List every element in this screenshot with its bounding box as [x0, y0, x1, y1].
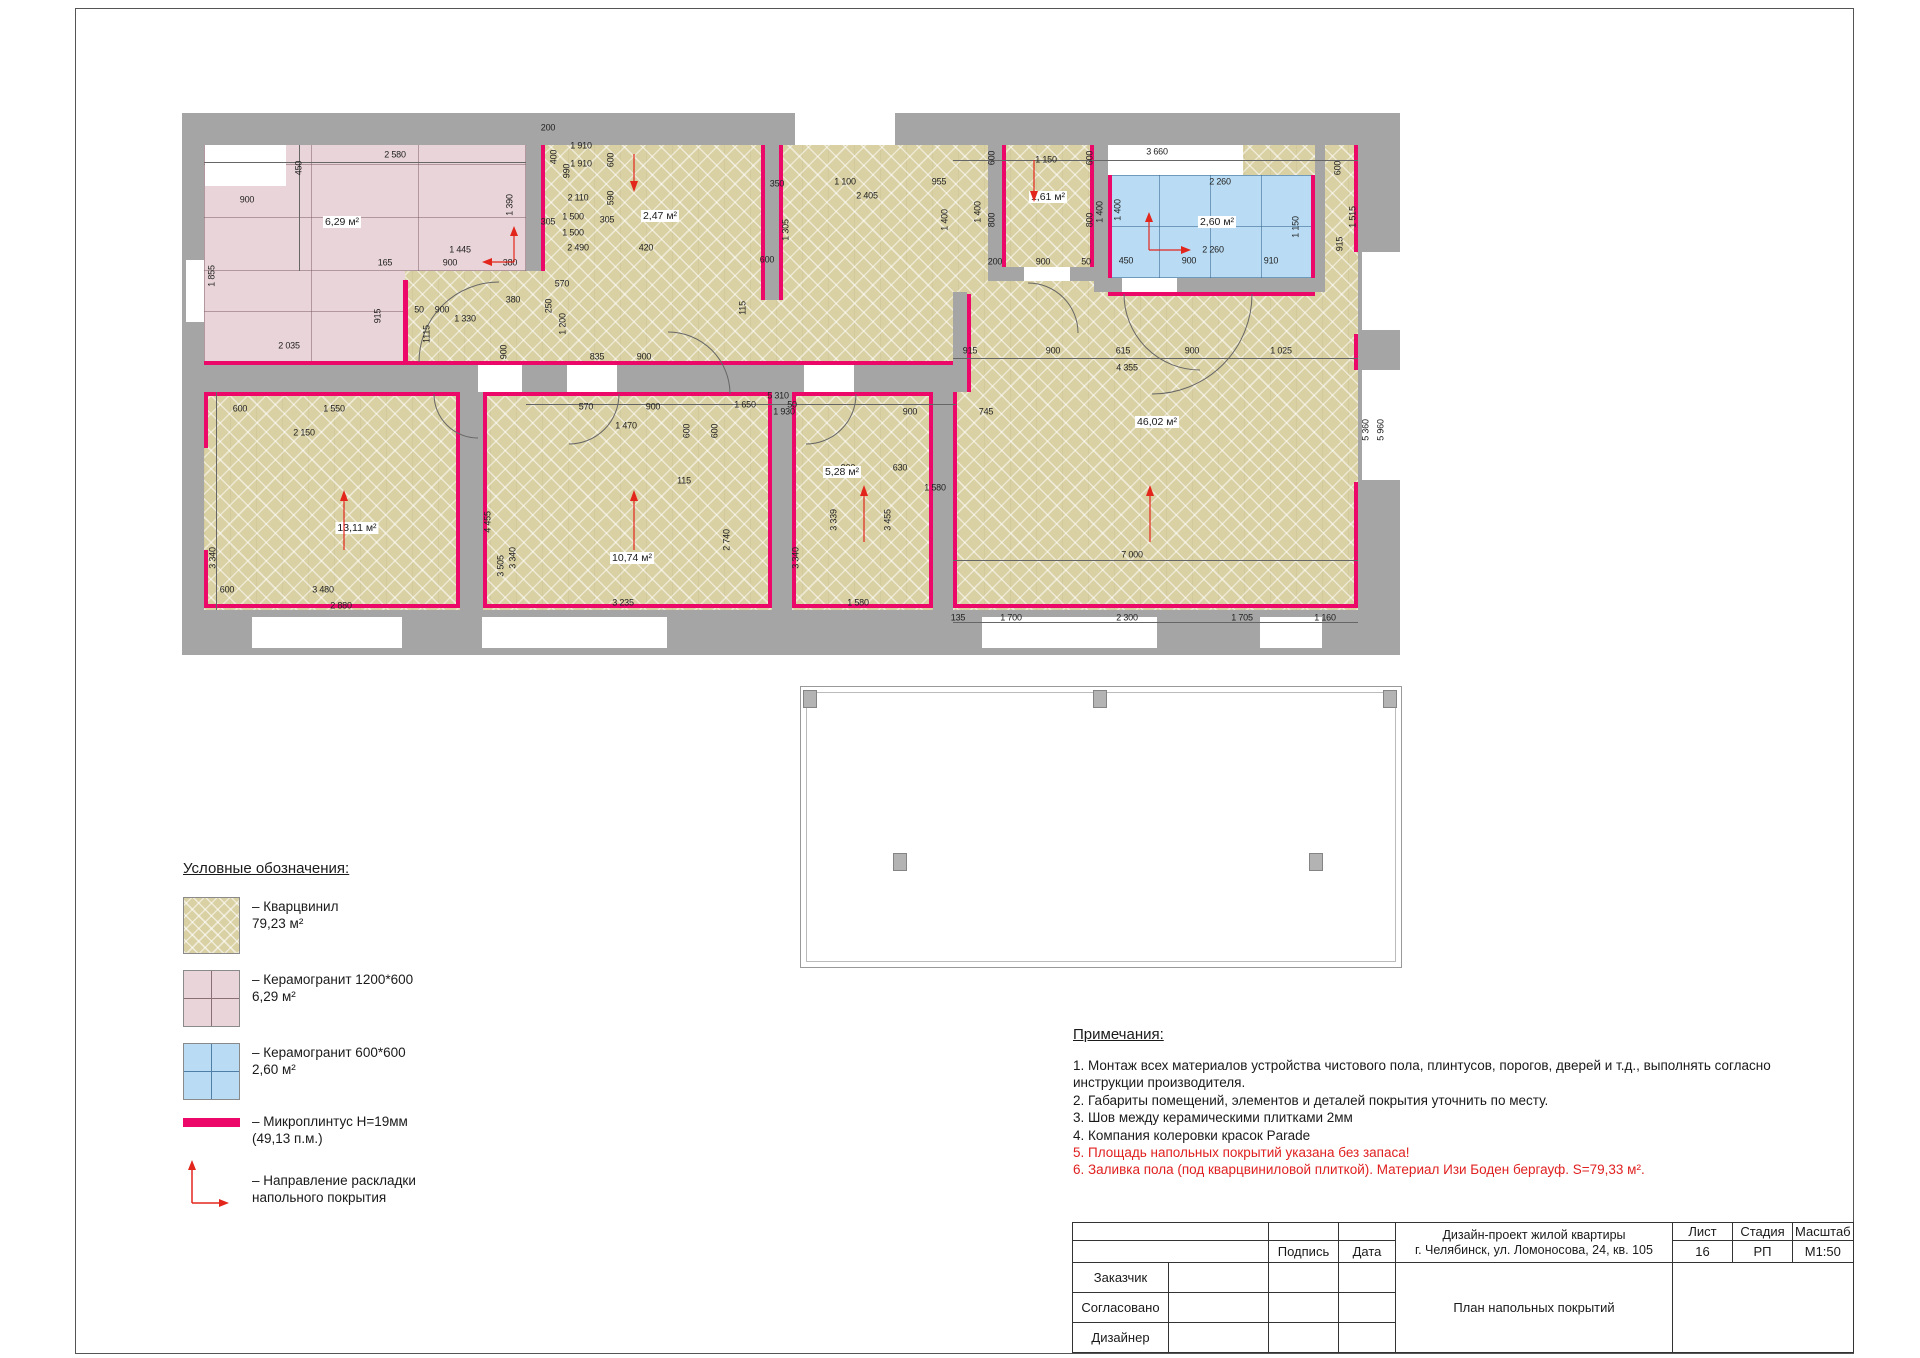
microplinth	[526, 361, 953, 365]
dimension-label: 2 880	[330, 602, 352, 611]
room-area-label: 2,60 м²	[1198, 216, 1236, 228]
dimension-label: 165	[378, 259, 392, 268]
microplinth	[1002, 145, 1006, 267]
legend-label: – Кварцвинил	[252, 899, 338, 914]
dimension-label: 900	[1046, 347, 1060, 356]
title-block-cell	[1339, 1223, 1396, 1241]
wall	[182, 113, 204, 655]
terrace-column	[1383, 690, 1397, 708]
microplinth	[1108, 175, 1112, 278]
dimension-label: 570	[555, 280, 569, 289]
dimension-label: 600	[711, 424, 720, 438]
dimension-label: 1 700	[1000, 614, 1022, 623]
note-line: 4. Компания колеровки красок Parade	[1073, 1127, 1863, 1144]
dimension-label: 800	[1086, 213, 1095, 227]
note-line: 2. Габариты помещений, элементов и детал…	[1073, 1092, 1863, 1109]
room-area-label: 5,28 м²	[823, 466, 861, 478]
dimension-label: 4 455	[484, 511, 493, 533]
dimension-label: 1 330	[454, 315, 476, 324]
terrace-inner-line	[806, 692, 1396, 962]
ceramic-600-swatch-icon	[183, 1043, 240, 1100]
quartz-vinyl-swatch-icon	[183, 897, 240, 954]
title-block-cell	[1339, 1263, 1396, 1293]
microplinth	[792, 392, 796, 604]
direction-arrow-icon	[183, 1158, 231, 1210]
microplinth	[403, 280, 408, 365]
title-block-cell	[1169, 1263, 1269, 1293]
terrace-column	[1309, 853, 1323, 871]
dimension-label: 450	[1119, 257, 1133, 266]
title-block-cell	[1073, 1223, 1269, 1241]
microplinth-swatch-icon	[183, 1118, 240, 1127]
title-block: Дизайн-проект жилой квартиры г. Челябинс…	[1072, 1222, 1854, 1353]
stage-value: РП	[1733, 1241, 1793, 1263]
dimension-label: 900	[435, 306, 449, 315]
door-swing-arc	[569, 394, 619, 444]
title-block-cell	[1673, 1263, 1854, 1353]
microplinth	[204, 392, 460, 396]
customer-label: Заказчик	[1073, 1263, 1169, 1293]
window-opening	[482, 617, 667, 648]
microplinth	[929, 392, 933, 604]
dimension-label: 900	[240, 196, 254, 205]
legend-area: 6,29 м²	[252, 989, 296, 1004]
dimension-label: 7 000	[1121, 551, 1143, 560]
sheet-number: 16	[1673, 1241, 1733, 1263]
dimension-label: 50	[414, 306, 424, 315]
microplinth	[953, 392, 957, 604]
dimension-label: 50	[787, 401, 797, 410]
dimension-label: 420	[639, 244, 653, 253]
window-opening	[567, 365, 617, 392]
room-area-label: 6,29 м²	[323, 216, 361, 228]
dimension-label: 3 235	[612, 599, 634, 608]
direction-arrow-icon	[1145, 485, 1155, 544]
title-block-cell	[1269, 1263, 1339, 1293]
dimension-label: 955	[932, 178, 946, 187]
legend-label: – Микроплинтус Н=19мм	[252, 1114, 408, 1129]
stage-label: Стадия	[1733, 1223, 1793, 1241]
window-opening	[478, 365, 522, 392]
dimension-label: 600	[683, 424, 692, 438]
ceramic-1200-swatch-icon	[183, 970, 240, 1027]
direction-arrow-icon	[339, 490, 349, 552]
window-opening	[795, 113, 895, 145]
legend-label: – Керамогранит 1200*600	[252, 972, 413, 987]
dimension-label: 3 339	[830, 509, 839, 531]
door-swing-arc	[434, 394, 478, 438]
microplinth	[1354, 145, 1358, 252]
dimension-label: 900	[1036, 258, 1050, 267]
microplinth	[1354, 482, 1358, 604]
dimension-label: 900	[646, 403, 660, 412]
dimension-label: 1 910	[570, 160, 592, 169]
dimension-label: 2 260	[1202, 246, 1224, 255]
dimension-label: 3 505	[497, 555, 506, 577]
project-description: Дизайн-проект жилой квартиры г. Челябинс…	[1396, 1223, 1673, 1263]
window-opening	[252, 617, 402, 648]
legend-item-direction: – Направление раскладкинапольного покрыт…	[183, 1158, 231, 1215]
dimension-label: 305	[541, 218, 555, 227]
dimension-label: 1 580	[924, 484, 946, 493]
door-swing-arc	[1028, 283, 1078, 333]
note-line: инструкции производителя.	[1073, 1074, 1863, 1091]
microplinth	[768, 392, 772, 604]
dimension-label: 305	[600, 216, 614, 225]
title-block-cell	[1269, 1323, 1339, 1353]
room-area-label: 46,02 м²	[1135, 416, 1179, 428]
dimension-label: 200	[988, 258, 1002, 267]
microplinth	[967, 294, 971, 392]
door-swing-arc	[668, 332, 730, 394]
note-line: 1. Монтаж всех материалов устройства чис…	[1073, 1057, 1863, 1074]
legend-area: (49,13 п.м.)	[252, 1131, 323, 1146]
dimension-label: 600	[220, 586, 234, 595]
wall	[988, 113, 1002, 267]
project-line2: г. Челябинск, ул. Ломоносова, 24, кв. 10…	[1415, 1243, 1653, 1257]
wall	[765, 145, 779, 300]
dimension-label: 900	[903, 408, 917, 417]
dimension-label: 1 400	[1096, 201, 1105, 223]
window-opening	[1122, 278, 1177, 292]
dimension-label: 1 500	[562, 229, 584, 238]
dimension-label: 1 025	[1270, 347, 1292, 356]
dimension-label: 350	[770, 180, 784, 189]
direction-arrow-icon	[629, 490, 639, 552]
direction-arrow-icon	[1029, 158, 1039, 202]
dimension-label: 2 035	[278, 342, 300, 351]
dimension-label: 1115	[423, 325, 432, 343]
wall	[933, 392, 953, 610]
dimension-label: 2 150	[293, 429, 315, 438]
dimension-label: 1 855	[208, 265, 217, 287]
dimension-label: 900	[1185, 347, 1199, 356]
dimension-label: 3 455	[884, 509, 893, 531]
dimension-label: 1 160	[1314, 614, 1336, 623]
title-block-cell	[1339, 1323, 1396, 1353]
dimension-label: 990	[563, 164, 572, 178]
title-block-cell	[1073, 1241, 1269, 1263]
floor-plan: 2 5804509001 3901 8551 4451659003809152 …	[182, 100, 1400, 658]
approved-label: Согласовано	[1073, 1293, 1169, 1323]
date-column-label: Дата	[1339, 1241, 1396, 1263]
dimension-label: 5 310	[767, 392, 789, 401]
door-swing-arc	[806, 394, 856, 444]
dimension-label: 1 100	[834, 178, 856, 187]
dimension-label: 2 740	[723, 529, 732, 551]
dimension-label: 450	[295, 161, 304, 175]
dimension-label: 600	[988, 151, 997, 165]
microplinth	[204, 392, 208, 448]
legend-heading: Условные обозначения:	[183, 860, 349, 877]
dimension-label: 5 360	[1362, 419, 1371, 441]
dimension-label: 1 470	[615, 422, 637, 431]
dimension-label: 3 340	[509, 547, 518, 569]
window-opening	[186, 260, 204, 322]
dimension-label: 600	[1334, 161, 1343, 175]
dimension-label: 800	[988, 213, 997, 227]
legend-label: – Направление раскладки	[252, 1173, 416, 1188]
dimension-label: 1 200	[559, 313, 568, 335]
dimension-line	[953, 560, 1358, 561]
dimension-label: 115	[677, 477, 691, 486]
dimension-label: 1 445	[449, 246, 471, 255]
dimension-label: 600	[607, 153, 616, 167]
title-block-cell	[1169, 1293, 1269, 1323]
dimension-label: 3 340	[209, 547, 218, 569]
legend-label: – Керамогранит 600*600	[252, 1045, 406, 1060]
window-opening	[205, 145, 286, 186]
dimension-label: 1 550	[323, 405, 345, 414]
wall	[1315, 113, 1325, 292]
dimension-label: 900	[1182, 257, 1196, 266]
dimension-label: 915	[963, 347, 977, 356]
scale-label: Масштаб	[1793, 1223, 1854, 1241]
dimension-label: 1 400	[1114, 199, 1123, 221]
dimension-line	[204, 162, 526, 163]
dimension-label: 600	[233, 405, 247, 414]
dimension-label: 2 580	[384, 151, 406, 160]
dimension-label: 570	[579, 403, 593, 412]
terrace-column	[893, 853, 907, 871]
dimension-label: 3 340	[792, 547, 801, 569]
dimension-label: 250	[545, 299, 554, 313]
note-line: 3. Шов между керамическими плитками 2мм	[1073, 1109, 1863, 1126]
wall	[526, 113, 541, 271]
dimension-label: 910	[1264, 257, 1278, 266]
window-opening	[804, 365, 854, 392]
project-line1: Дизайн-проект жилой квартиры	[1442, 1228, 1625, 1242]
dimension-label: 1 150	[1292, 216, 1301, 238]
title-block-cell	[1169, 1323, 1269, 1353]
dimension-label: 1 400	[974, 201, 983, 223]
direction-arrow-icon	[482, 226, 518, 266]
notes-heading: Примечания:	[1073, 1026, 1863, 1043]
terrace-column	[803, 690, 817, 708]
dimension-label: 1 910	[570, 142, 592, 151]
wall	[953, 292, 967, 392]
dimension-label: 1 650	[734, 401, 756, 410]
microplinth	[761, 145, 765, 300]
dimension-label: 1 515	[1349, 206, 1358, 228]
terrace-outline	[800, 686, 1402, 968]
legend-area: напольного покрытия	[252, 1190, 386, 1205]
wall	[182, 113, 1400, 145]
dimension-label: 2 300	[1116, 614, 1138, 623]
notes: Примечания: 1. Монтаж всех материалов ус…	[1073, 1026, 1863, 1179]
wall	[772, 392, 792, 610]
designer-label: Дизайнер	[1073, 1323, 1169, 1353]
dimension-label: 900	[443, 259, 457, 268]
dimension-label: 600	[1086, 151, 1095, 165]
microplinth	[1354, 334, 1358, 370]
title-block-cell	[1269, 1293, 1339, 1323]
note-line-warning: 6. Заливка пола (под кварцвиниловой плит…	[1073, 1161, 1863, 1178]
direction-arrow-icon	[859, 485, 869, 544]
dimension-label: 3 480	[312, 586, 334, 595]
dimension-label: 200	[541, 124, 555, 133]
dimension-label: 380	[506, 296, 520, 305]
drawing-title: План напольных покрытий	[1396, 1263, 1673, 1353]
dimension-label: 630	[893, 464, 907, 473]
dimension-label: 900	[637, 353, 651, 362]
dimension-label: 5 960	[1377, 419, 1386, 441]
microplinth	[483, 392, 487, 604]
window-opening	[1024, 267, 1070, 281]
dimension-label: 900	[500, 345, 509, 359]
dimension-label: 590	[607, 191, 616, 205]
title-block-cell	[1269, 1223, 1339, 1241]
dimension-line	[216, 392, 217, 610]
dimension-label: 50	[1081, 258, 1091, 267]
sheet-label: Лист	[1673, 1223, 1733, 1241]
dimension-label: 1 705	[1231, 614, 1253, 623]
dimension-label: 1 305	[782, 219, 791, 241]
dimension-label: 2 110	[568, 194, 589, 203]
dimension-label: 135	[951, 614, 965, 623]
dimension-label: 835	[590, 353, 604, 362]
dimension-label: 1 400	[941, 209, 950, 231]
dimension-label: 745	[979, 408, 993, 417]
legend-area: 2,60 м²	[252, 1062, 296, 1077]
dimension-label: 1 580	[847, 599, 869, 608]
dimension-label: 400	[550, 150, 559, 164]
dimension-label: 915	[1336, 237, 1345, 251]
dimension-label: 615	[1116, 347, 1130, 356]
room-area-label: 10,74 м²	[610, 552, 654, 564]
microplinth	[1311, 175, 1315, 278]
dimension-label: 2 405	[856, 192, 878, 201]
microplinth	[541, 145, 545, 271]
direction-arrow-icon	[629, 152, 639, 192]
direction-arrow-icon	[1145, 212, 1191, 254]
terrace-column	[1093, 690, 1107, 708]
door-swing-arc	[1152, 294, 1252, 394]
scale-value: М1:50	[1793, 1241, 1854, 1263]
microplinth	[953, 604, 1358, 608]
dimension-label: 600	[760, 256, 774, 265]
window-opening	[1362, 252, 1400, 330]
dimension-label: 1 500	[562, 213, 584, 222]
dimension-label: 915	[374, 309, 383, 323]
dimension-label: 2 490	[567, 244, 589, 253]
signature-column-label: Подпись	[1269, 1241, 1339, 1263]
dimension-line	[953, 160, 1358, 161]
dimension-label: 1 390	[506, 194, 515, 216]
dimension-label: 2 260	[1209, 178, 1231, 187]
dimension-label: 115	[739, 301, 748, 315]
room-area-label: 2,47 м²	[641, 210, 679, 222]
dimension-label: 3 660	[1146, 148, 1168, 157]
title-block-cell	[1339, 1293, 1396, 1323]
legend-area: 79,23 м²	[252, 916, 303, 931]
note-line-warning: 5. Площадь напольных покрытий указана бе…	[1073, 1144, 1863, 1161]
dimension-label: 4 355	[1116, 364, 1138, 373]
